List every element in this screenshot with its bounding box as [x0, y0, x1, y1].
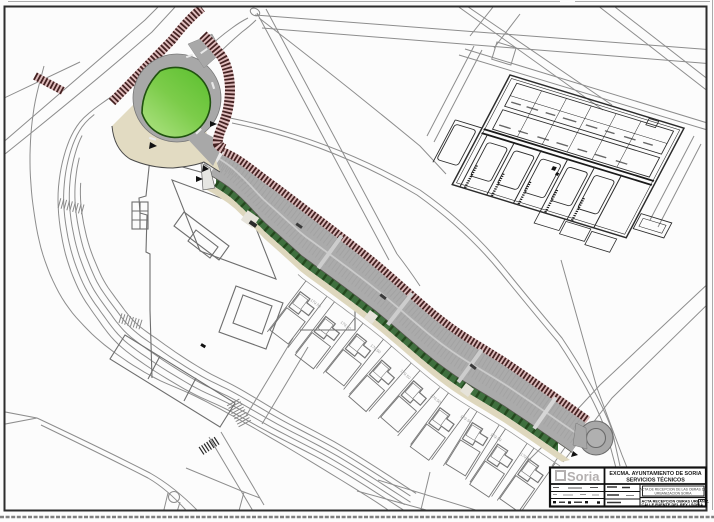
svg-text:SERVICIOS TÉCNICOS: SERVICIOS TÉCNICOS — [626, 476, 685, 484]
svg-text:Soria: Soria — [567, 469, 600, 484]
svg-text:URBANIZACION SORIA: URBANIZACION SORIA — [654, 491, 692, 495]
svg-text:EXCMA. AYUNTAMIENTO DE SORIA: EXCMA. AYUNTAMIENTO DE SORIA — [609, 471, 701, 477]
svg-text:CALLE FUENTE DEL REY / SORIA: CALLE FUENTE DEL REY / SORIA — [642, 503, 704, 507]
